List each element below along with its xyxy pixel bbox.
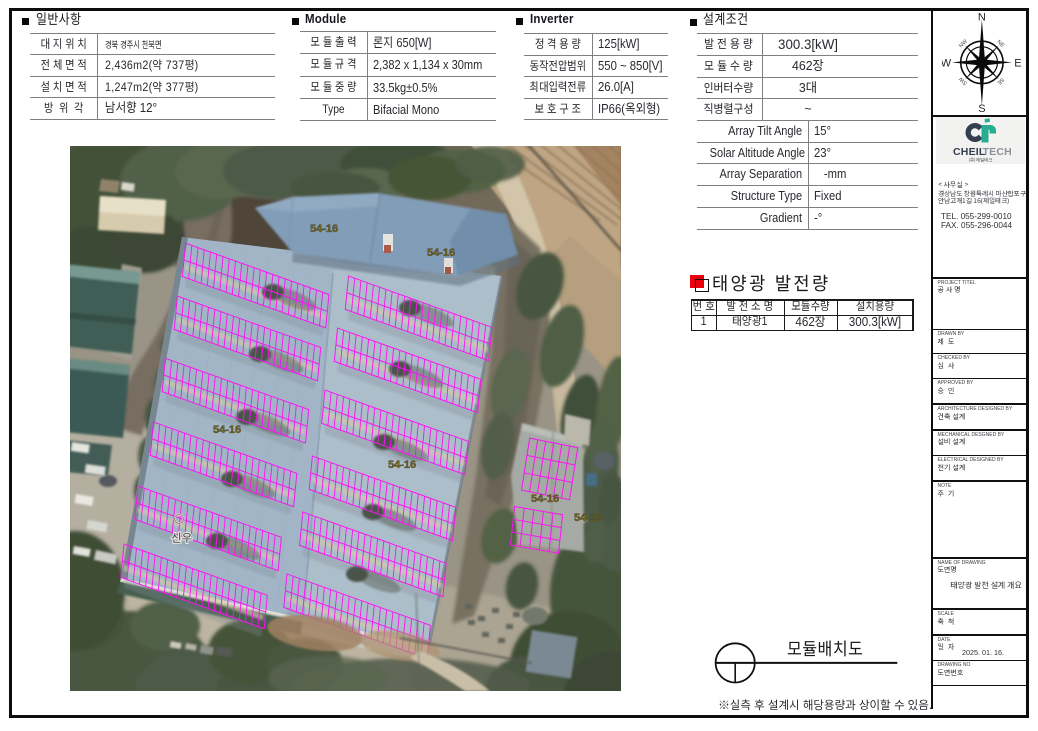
svg-text:N: N — [978, 12, 986, 24]
svg-text:(주)제일테크: (주)제일테크 — [968, 157, 992, 164]
svg-text:TECH: TECH — [983, 146, 1012, 158]
svg-text:CHEIL: CHEIL — [953, 146, 986, 158]
svg-text:S: S — [978, 103, 985, 113]
svg-text:W: W — [942, 57, 952, 69]
svg-text:E: E — [1014, 57, 1021, 69]
